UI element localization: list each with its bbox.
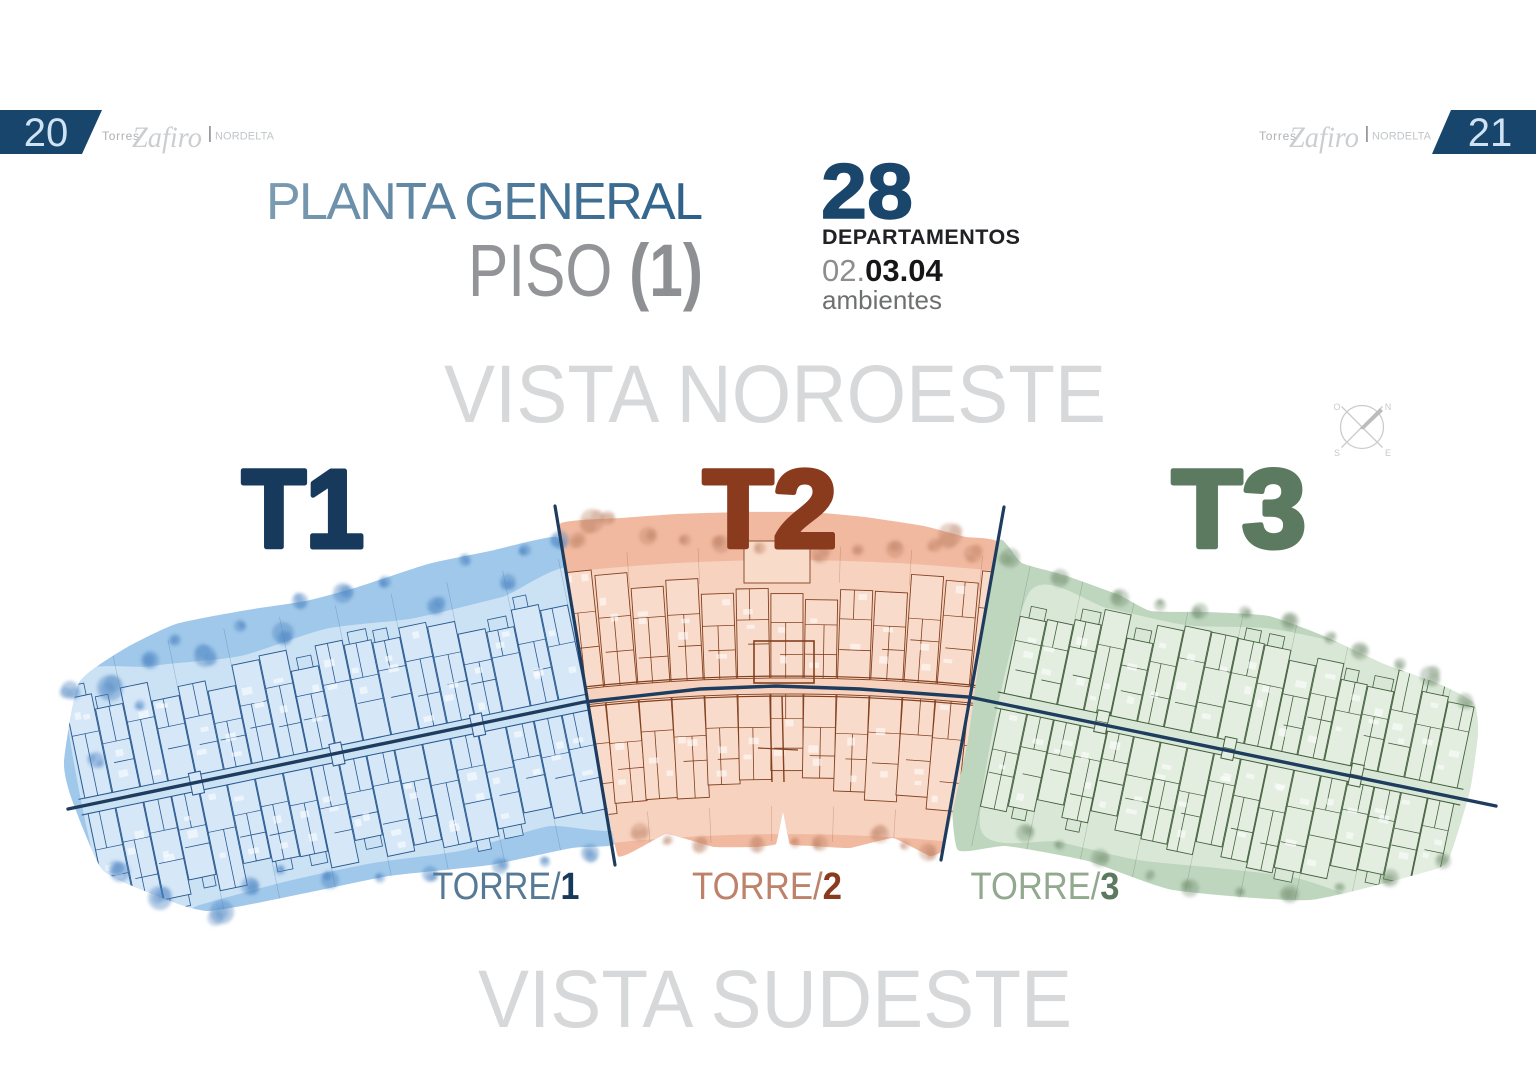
svg-text:N: N <box>1385 402 1392 412</box>
svg-text:S: S <box>1334 448 1340 458</box>
svg-text:VISTA NOROESTE: VISTA NOROESTE <box>444 349 1106 440</box>
svg-text:PLANTA GENERAL: PLANTA GENERAL <box>266 173 703 231</box>
svg-text:TORRE/2: TORRE/2 <box>692 866 842 908</box>
svg-text:02.03.04: 02.03.04 <box>822 253 943 288</box>
svg-text:20: 20 <box>24 111 69 155</box>
svg-text:ambientes: ambientes <box>822 285 942 315</box>
svg-text:TORRE/1: TORRE/1 <box>433 866 580 908</box>
svg-text:T3: T3 <box>1172 448 1306 571</box>
svg-text:E: E <box>1385 448 1391 458</box>
svg-text:NORDELTA: NORDELTA <box>215 131 275 143</box>
svg-text:TORRE/3: TORRE/3 <box>971 866 1120 908</box>
svg-text:O: O <box>1333 402 1340 412</box>
svg-text:21: 21 <box>1468 111 1513 155</box>
svg-text:T1: T1 <box>242 448 364 571</box>
svg-text:T2: T2 <box>703 448 837 571</box>
svg-text:NORDELTA: NORDELTA <box>1372 131 1432 143</box>
svg-text:Zafiro: Zafiro <box>1289 121 1359 154</box>
svg-text:DEPARTAMENTOS: DEPARTAMENTOS <box>822 225 1020 249</box>
svg-text:Zafiro: Zafiro <box>132 121 202 154</box>
svg-text:28: 28 <box>821 147 913 235</box>
svg-text:PISO (1): PISO (1) <box>468 229 703 312</box>
svg-text:VISTA SUDESTE: VISTA SUDESTE <box>478 954 1072 1045</box>
